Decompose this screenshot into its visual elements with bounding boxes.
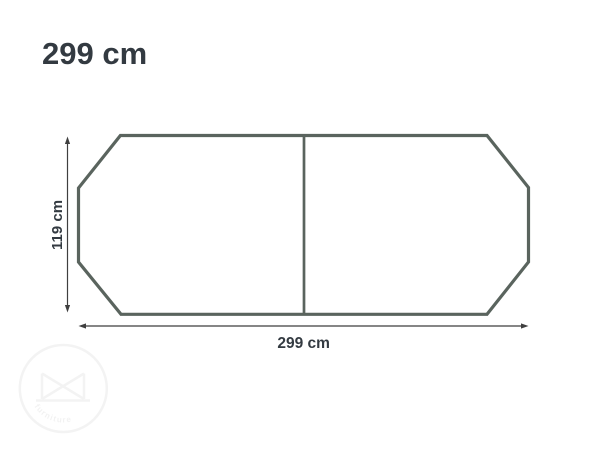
svg-text:119 cm: 119 cm — [49, 200, 66, 250]
svg-text:299 cm: 299 cm — [277, 335, 330, 352]
svg-text:furniture: furniture — [33, 402, 73, 424]
